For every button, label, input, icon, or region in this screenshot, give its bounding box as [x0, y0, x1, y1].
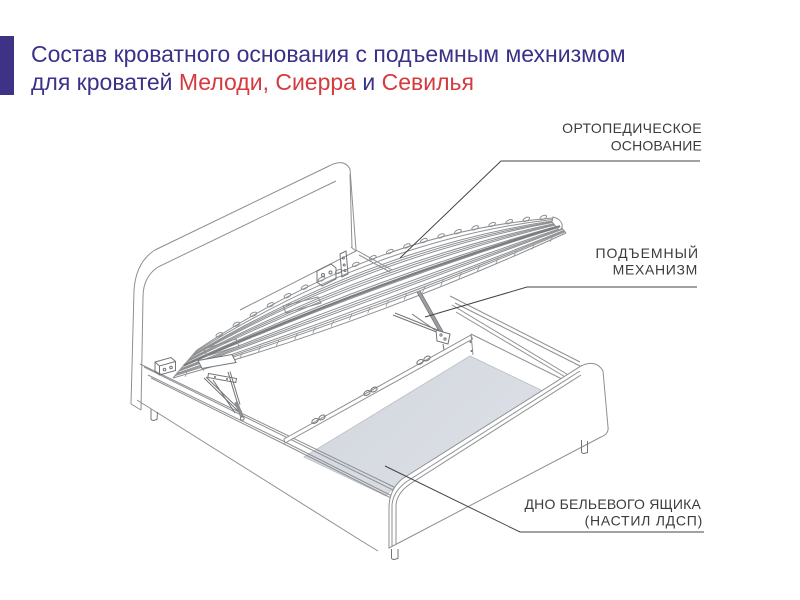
- svg-text:ДНО БЕЛЬЕВОГО ЯЩИКА: ДНО БЕЛЬЕВОГО ЯЩИКА: [524, 496, 701, 512]
- svg-text:ОСНОВАНИЕ: ОСНОВАНИЕ: [611, 138, 702, 154]
- svg-text:МЕХАНИЗМ: МЕХАНИЗМ: [613, 262, 698, 278]
- svg-text:(НАСТИЛ ЛДСП): (НАСТИЛ ЛДСП): [585, 513, 703, 529]
- svg-text:ОРТОПЕДИЧЕСКОЕ: ОРТОПЕДИЧЕСКОЕ: [562, 120, 702, 136]
- svg-text:ПОДЪЕМНЫЙ: ПОДЪЕМНЫЙ: [595, 244, 699, 261]
